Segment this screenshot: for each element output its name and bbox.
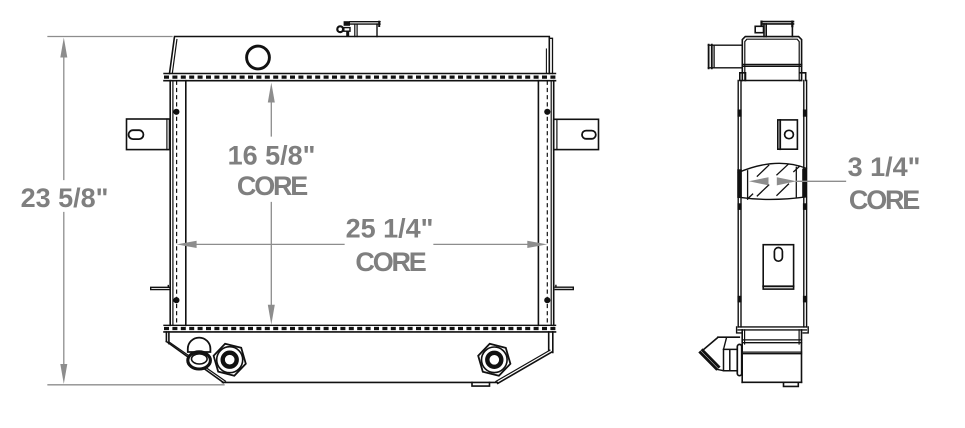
svg-text:3 1/4": 3 1/4" [848, 152, 921, 182]
svg-text:CORE: CORE [355, 247, 425, 277]
svg-text:CORE: CORE [237, 171, 307, 201]
svg-text:16 5/8": 16 5/8" [228, 141, 316, 171]
svg-text:CORE: CORE [849, 185, 919, 215]
svg-text:25 1/4": 25 1/4" [346, 214, 434, 244]
svg-text:23 5/8": 23 5/8" [21, 183, 109, 213]
